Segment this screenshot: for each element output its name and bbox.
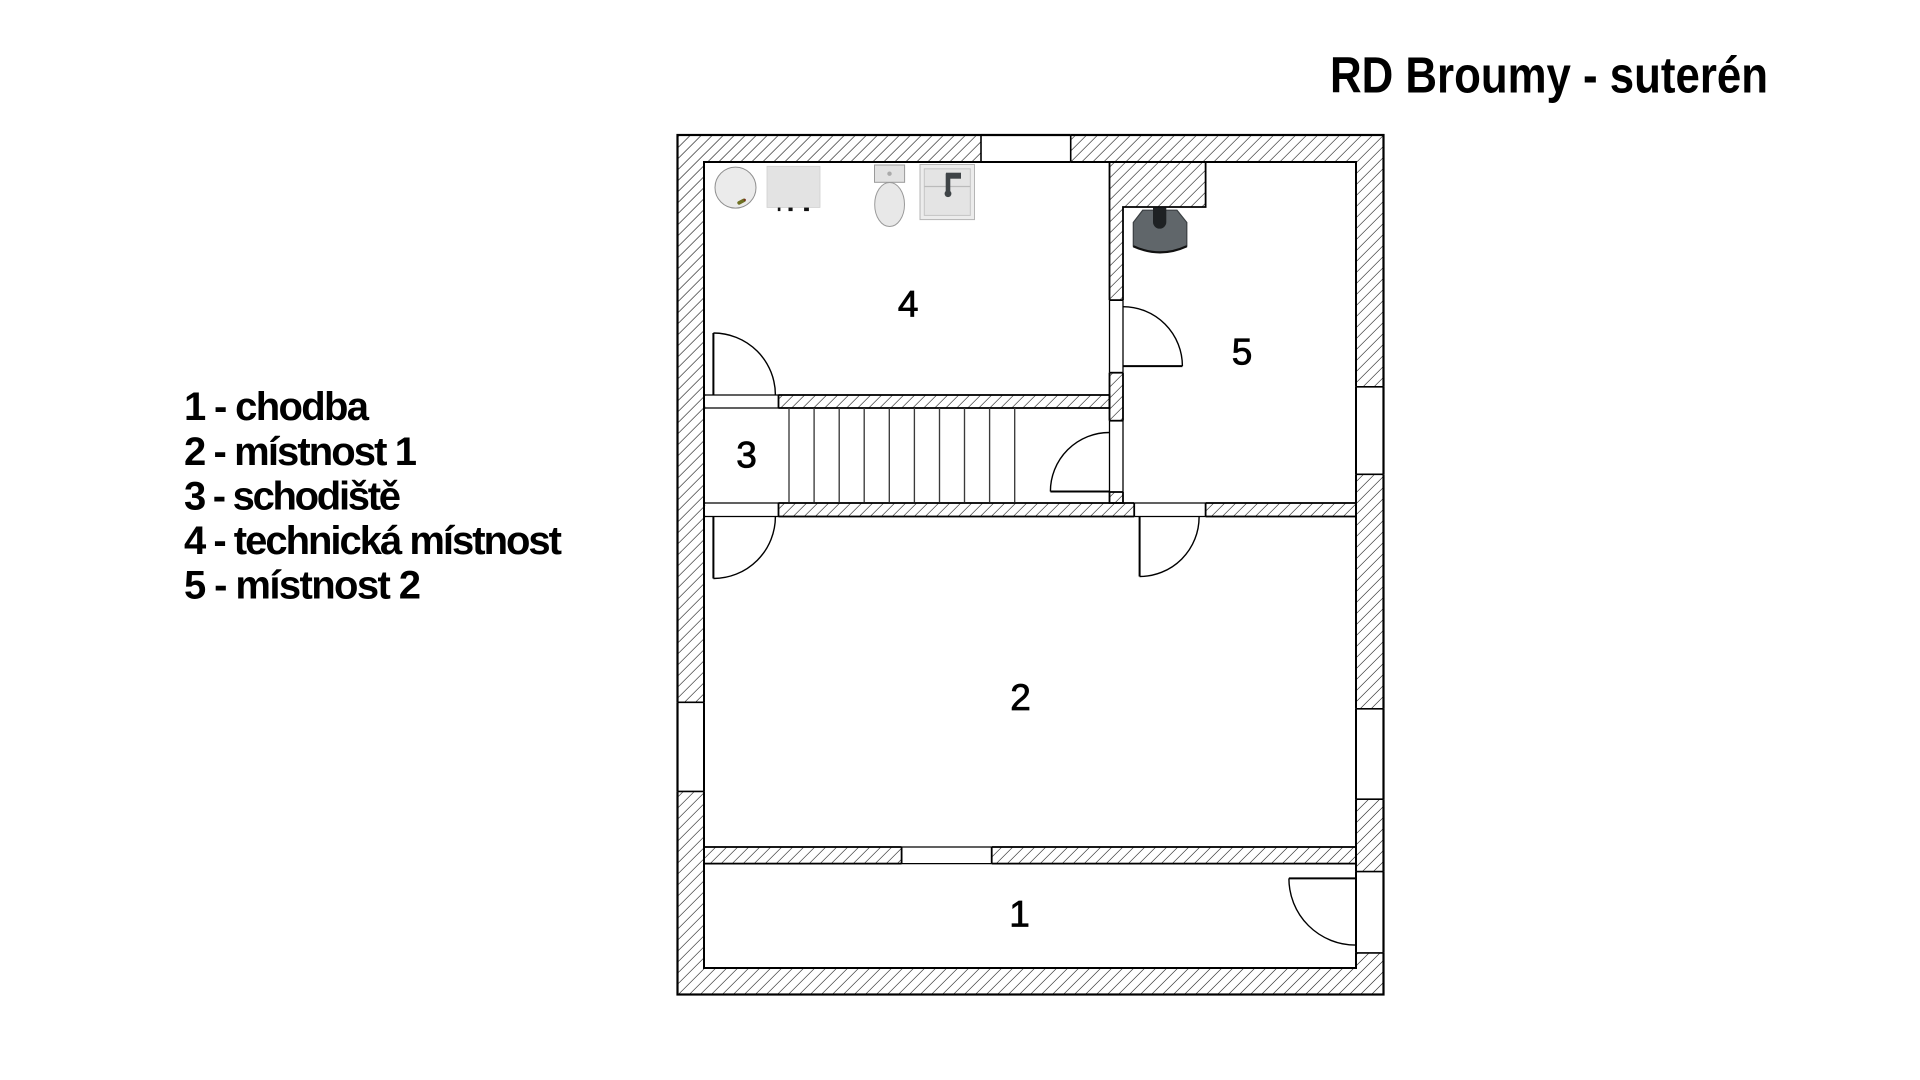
svg-text:4: 4 bbox=[898, 284, 919, 325]
svg-text:1: 1 bbox=[1009, 894, 1030, 935]
svg-text:3 - schodiště: 3 - schodiště bbox=[184, 474, 401, 518]
svg-text:2: 2 bbox=[1010, 677, 1031, 718]
svg-text:3: 3 bbox=[736, 435, 757, 476]
svg-text:2 - místnost 1: 2 - místnost 1 bbox=[184, 430, 417, 474]
svg-text:5: 5 bbox=[1232, 331, 1253, 372]
svg-text:4 - technická místnost: 4 - technická místnost bbox=[184, 519, 562, 563]
svg-text:RD Broumy - suterén: RD Broumy - suterén bbox=[1330, 47, 1768, 104]
svg-text:5 - místnost 2: 5 - místnost 2 bbox=[184, 564, 421, 608]
svg-text:1 - chodba: 1 - chodba bbox=[184, 385, 370, 429]
